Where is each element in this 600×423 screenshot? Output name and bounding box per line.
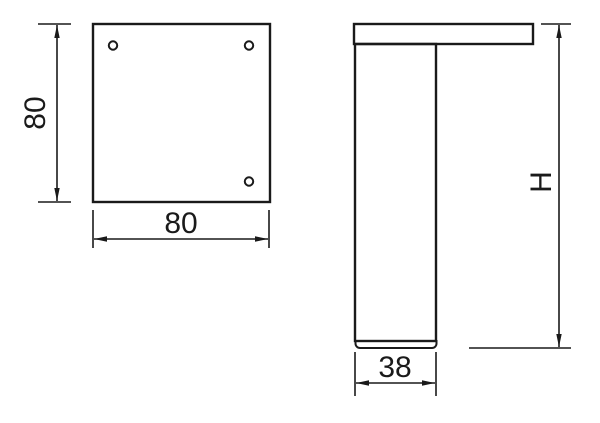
mounting-hole-top-right	[245, 41, 253, 49]
side-view-top-plate-outline	[354, 24, 533, 44]
top-view: 80 80	[19, 24, 270, 248]
side-view: H 38	[354, 24, 571, 396]
top-view-plate-outline	[93, 24, 270, 202]
plate-height-dimension-label: 80	[19, 96, 52, 129]
side-view-leg-column-outline	[355, 44, 436, 341]
foot-width-dimension-label: 38	[378, 351, 411, 384]
mounting-hole-top-left	[109, 41, 117, 49]
furniture-leg-drawing: 80 80 H 38	[0, 0, 600, 423]
plate-width-dimension-label: 80	[164, 207, 197, 240]
technical-drawing-canvas: 80 80 H 38	[0, 0, 600, 423]
mounting-hole-bottom-right	[245, 177, 253, 185]
leg-height-dimension-label: H	[525, 171, 558, 193]
